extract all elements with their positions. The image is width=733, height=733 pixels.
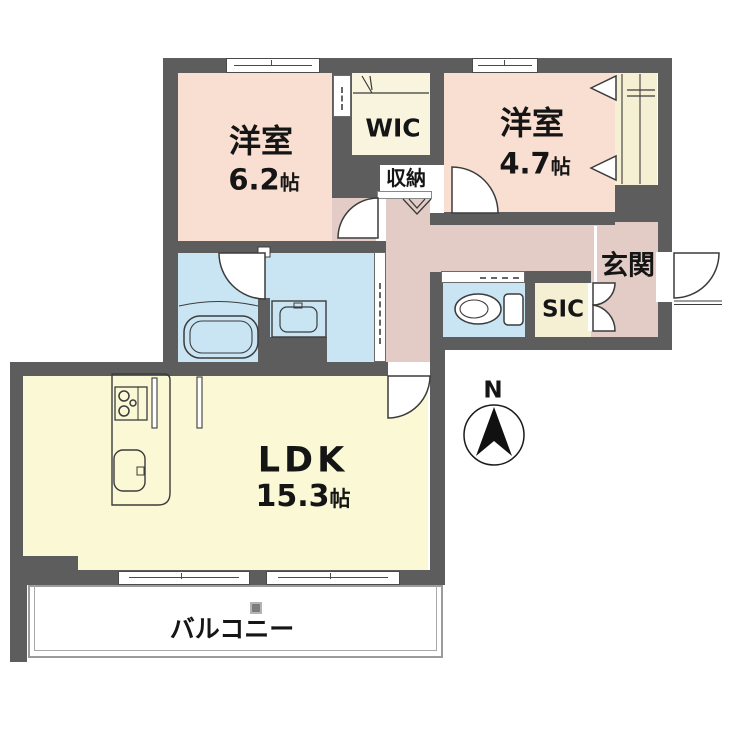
stove-burner-2 [119, 406, 129, 416]
wic-label: WIC [365, 116, 420, 141]
ldk-name: LDK [258, 441, 348, 481]
stove-burner-1 [119, 391, 129, 401]
bedroom1-name-label: 洋室 [229, 125, 293, 157]
sic-text: SIC [542, 297, 584, 323]
kitchen-panel-2 [197, 377, 202, 428]
floor-plan: 洋室 6.2帖 洋室 4.7帖 WIC 収納 玄関 SIC LDK 15.3帖 … [0, 0, 733, 733]
sic-double-door-bottom [593, 305, 615, 331]
kitchen-stove [115, 387, 147, 420]
sic-double-door-top [593, 283, 615, 305]
bedroom2-unit: 帖 [551, 155, 571, 179]
closet-slide-arrow-bottom [591, 156, 616, 180]
balcony-text: バルコニー [170, 615, 295, 644]
bedroom2-size-label: 4.7帖 [499, 150, 570, 179]
entrance-door-arc [674, 253, 719, 298]
bedroom1-door-arc [338, 198, 378, 238]
ldk-name-label: LDK [258, 444, 348, 479]
wic-text: WIC [365, 114, 420, 143]
compass-n-label: N [483, 380, 502, 403]
storage-text: 収納 [386, 166, 426, 190]
ldk-size: 15.3 [255, 479, 329, 514]
bedroom1-name: 洋室 [229, 122, 293, 160]
bedroom2-name-label: 洋室 [500, 107, 564, 139]
entrance-text: 玄関 [601, 251, 655, 282]
bathtub-inner [190, 321, 252, 353]
ldk-unit: 帖 [330, 487, 351, 511]
entrance-threshold-lines [674, 301, 722, 305]
toilet-bowl [455, 294, 501, 324]
stove-burner-3 [130, 400, 136, 406]
ldk-size-label: 15.3帖 [255, 482, 350, 512]
bedroom1-unit: 帖 [280, 171, 300, 195]
bedroom1-size-label: 6.2帖 [228, 166, 299, 195]
kitchen-panel-1 [152, 378, 157, 428]
wic-hanger-pipe [353, 76, 429, 93]
bedroom2-name: 洋室 [500, 104, 564, 142]
bedroom2-door-arc [452, 167, 498, 213]
balcony-drain [250, 602, 262, 614]
bathtub-outer [184, 316, 258, 358]
toilet-tank [504, 294, 523, 325]
storage-folding-door [403, 199, 431, 214]
kitchen-sink [114, 450, 145, 491]
bathroom-counter-line [179, 302, 258, 307]
compass-north-arrow [476, 407, 512, 456]
balcony-label: バルコニー [170, 617, 295, 642]
entrance-label: 玄関 [601, 253, 655, 280]
compass-n-text: N [483, 378, 502, 404]
sic-label: SIC [542, 299, 584, 322]
ldk-door-arc [388, 376, 430, 418]
vanity-sink [280, 307, 317, 332]
kitchen-counter [112, 374, 170, 505]
bathroom-door-arc [219, 253, 265, 299]
kitchen-sink-tap [137, 467, 144, 475]
closet-hanger-pipe [627, 90, 655, 96]
bedroom1-size: 6.2 [228, 163, 279, 197]
storage-label: 収納 [386, 168, 426, 188]
bedroom2-size: 4.7 [499, 147, 550, 181]
closet-slide-arrow-top [591, 76, 616, 100]
